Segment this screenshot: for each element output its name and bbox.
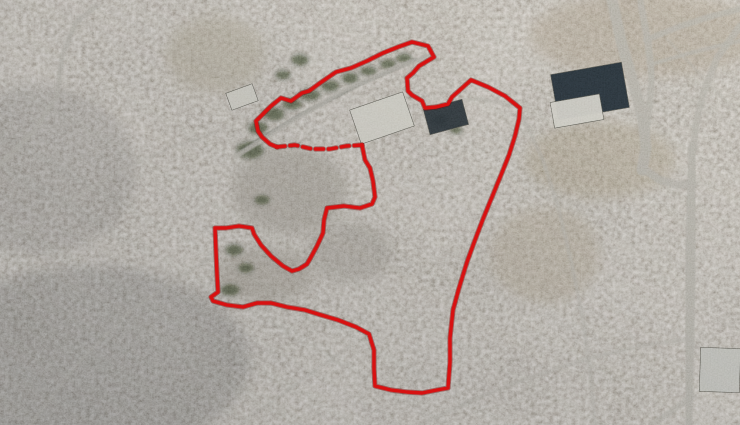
satellite-image xyxy=(0,0,740,425)
sunlight-shading xyxy=(0,0,740,425)
satellite-map-view xyxy=(0,0,740,425)
texture-overlay xyxy=(0,0,740,425)
